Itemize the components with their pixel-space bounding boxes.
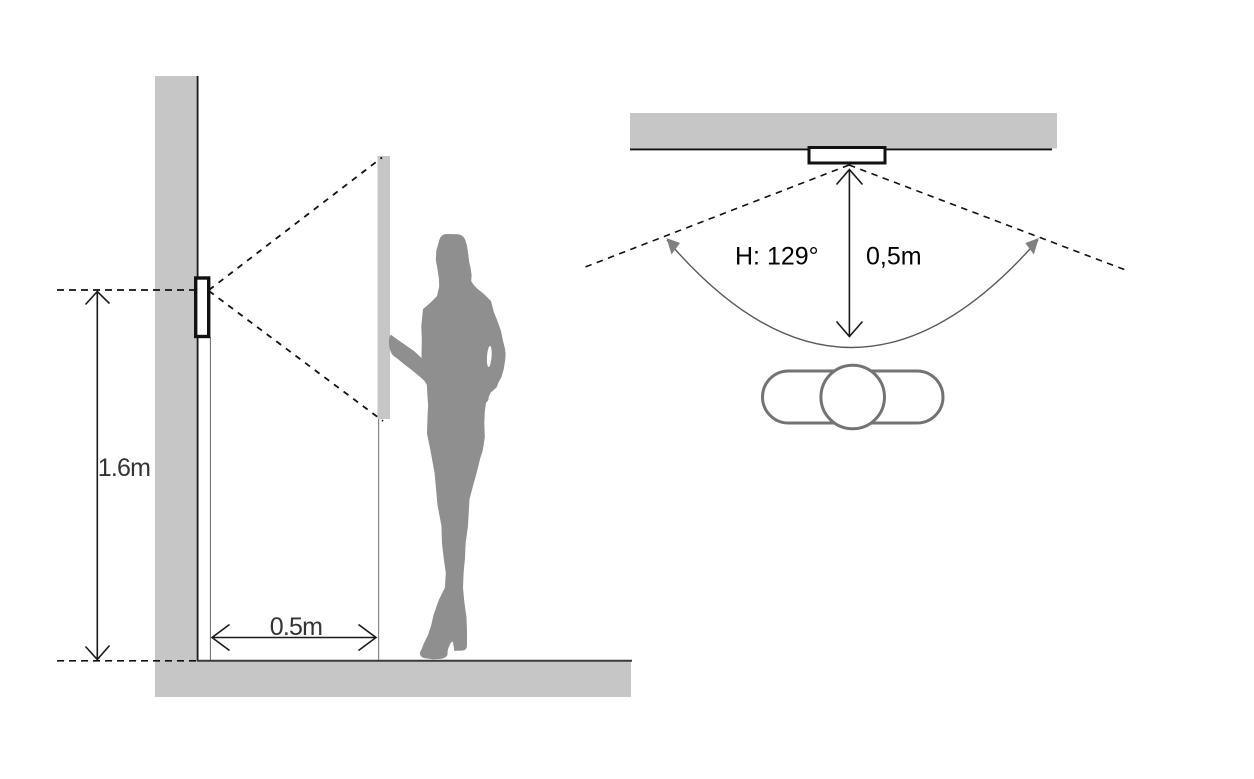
- svg-text:0,5m: 0,5m: [866, 243, 922, 271]
- svg-text:1.6m: 1.6m: [98, 454, 150, 482]
- svg-text:0.5m: 0.5m: [270, 613, 322, 641]
- svg-text:H: 129°: H: 129°: [735, 243, 819, 271]
